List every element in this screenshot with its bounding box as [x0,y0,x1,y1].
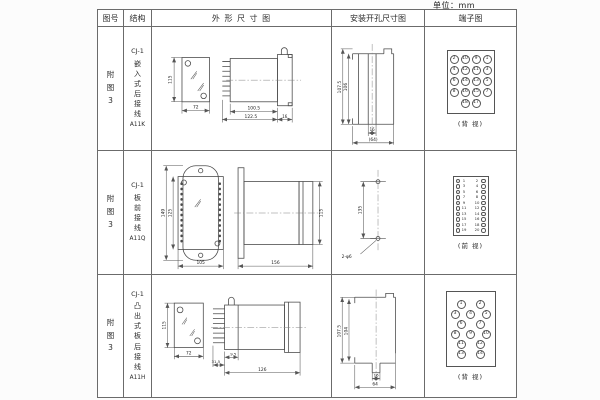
mounting-drawing-a11h: 107.5 104 16 64 [333,276,424,396]
terminal-number: 3 [461,184,467,188]
outline-cell-row2: 149 125 105 156 115 [152,151,332,275]
dim-slot-w: 16 [369,127,374,132]
terminal: 12 [476,340,485,349]
terminal: 15 [472,88,481,97]
terminal: 4 [450,66,459,75]
dim-depth1: 100.5 [247,105,260,111]
mirror-mark [194,199,200,207]
terminal: 1 [483,55,492,64]
outline-cell-row1: 115 72 100.5 122.5 16 [152,27,332,151]
dim-cutout-h1: 107.5 [336,325,342,338]
terminal-circle [456,190,461,195]
terminal-view-label: (前 视) [458,240,483,250]
mounting-drawing-a11q: 135 2-φ6 [333,152,424,274]
terminal: 8 [451,330,460,339]
terminal: 16 [461,88,470,97]
structure-cell-row3: CJ-1 凸 出 式 板 后 接 线 A11H [124,275,152,397]
dim-slot-w: 16 [373,373,378,378]
dim-cutout-h2: 104 [343,327,349,336]
terminal-circle [481,201,486,206]
mirror-mark [197,83,203,91]
terminal-number: 15 [461,217,467,221]
terminal-number: 11 [461,206,467,210]
terminal-circle [456,217,461,222]
terminal-circle [481,179,486,184]
dim-cutout-w: 64 [372,381,378,387]
terminal: 2 [450,55,459,64]
terminal-number: 18 [474,223,480,227]
terminal-number: 17 [461,223,467,227]
dim-side-h: 115 [318,208,324,217]
terminal-view-label: (背 视) [458,371,483,381]
figure-cell-row3: 附 图 3 [98,275,124,397]
terminal-number: 19 [461,228,467,232]
dim-case-h: 125 [167,208,173,217]
terminal: 17 [472,99,481,108]
terminal-circle [481,217,486,222]
terminal-circle [456,179,461,184]
terminal-number: 16 [474,217,480,221]
terminal-circle [481,228,486,233]
dim-front-width: 72 [186,350,192,356]
structure-cell-row1: CJ-1 嵌 入 式 后 接 线 A11K [124,27,152,151]
terminal-number: 8 [474,195,480,199]
dimension-table: 图号 结构 外 形 尺 寸 图 安装开孔尺寸图 端子图 附 图 3 CJ-1 嵌… [97,9,517,398]
dim-body-depth: 126 [258,367,267,373]
terminal: 3 [483,66,492,75]
terminal-circle [456,223,461,228]
terminal-number: 13 [461,212,467,216]
terminal-circle [456,228,461,233]
terminal-number: 4 [474,184,480,188]
terminal-circle [456,212,461,217]
terminal: 1 [457,300,466,309]
terminal-block-back-view: 21091 412113 614135 816157 1817 [447,50,495,114]
header-cell-mounting: 安装开孔尺寸图 [332,10,425,27]
structure-code-label: A11K [130,121,145,129]
terminal-pins [222,61,230,95]
terminal-circle [456,201,461,206]
terminal: 6 [457,320,466,329]
terminal-number: 9 [461,201,467,205]
terminal-circle [481,223,486,228]
terminal-circle [456,206,461,211]
mounting-cell-row1: 107.5 106 16 (64) [332,27,425,151]
terminal-view-label: (背 视) [458,118,483,128]
structure-type-label: 嵌 入 式 后 接 线 [134,59,141,120]
terminal-circle [481,184,486,189]
dim-front-height: 115 [161,321,167,330]
terminal-number: 7 [461,195,467,199]
dim-cutout-w: (64) [368,136,377,142]
outline-drawing-a11k: 115 72 100.5 122.5 16 [153,28,331,150]
structure-code-label: A11H [130,374,146,382]
dim-depth: 156 [271,260,280,266]
mounting-cell-row2: 135 2-φ6 [332,151,425,275]
terminal-cell-row2: 12 34 56 78 910 1112 1314 1516 1718 1920… [425,151,516,275]
terminal-number: 10 [474,201,480,205]
dim-front-height: 115 [167,75,173,84]
hole-spec-label: 2-φ6 [341,254,351,260]
terminal: 9 [466,330,475,339]
mirror-mark [190,71,196,79]
terminal-circle [481,212,486,217]
structure-cell-row2: CJ-1 板 前 接 线 A11Q [124,151,152,275]
terminal: 11 [472,66,481,75]
terminal: 10 [461,55,470,64]
structure-type-label: 板 前 接 线 [134,193,141,234]
terminal-circle [481,190,486,195]
mounting-cell-row3: 107.5 104 16 64 [332,275,425,397]
header-cell-figure: 图号 [98,10,124,27]
terminal-circle [456,195,461,200]
terminal: 13 [472,77,481,86]
dim-pins-depth: 31.5 [211,359,220,364]
dim-flange: 16 [282,114,287,119]
outline-drawing-a11h: 115 72 31.5 9.5 126 [153,276,331,396]
dim-plate-depth: 9.5 [230,351,237,356]
hook [281,47,287,54]
model-label: CJ-1 [131,181,144,190]
terminal-circle [481,206,486,211]
terminal: 10 [482,330,491,339]
dim-plate-h: 149 [160,208,166,217]
mirror-mark [182,318,187,325]
terminal-number: 20 [474,228,480,232]
header-cell-structure: 结构 [124,10,152,27]
terminal: 5 [482,310,491,319]
dim-cutout-h1: 107.5 [336,80,342,93]
figure-cell-row2: 附 图 3 [98,151,124,275]
structure-type-label: 凸 出 式 板 后 接 线 [134,301,141,372]
model-label: CJ-1 [131,47,144,56]
mirror-mark [189,329,194,336]
terminal: 18 [461,99,470,108]
terminal-block-front-view: 12 34 56 78 910 1112 1314 1516 1718 1920 [453,176,489,236]
terminal-circle [481,195,486,200]
dim-front-width: 72 [192,104,198,110]
terminal: 14 [476,350,485,359]
dim-cutout-h2: 106 [343,82,349,91]
terminal-cell-row3: 12 345 67 8910 1112 1314 (背 视) [425,275,516,397]
dim-front-w: 105 [196,260,205,266]
terminal-block-back-view: 12 345 67 8910 1112 1314 [446,291,496,367]
mounting-drawing-a11k: 107.5 106 16 (64) [333,28,424,150]
figure-cell-row1: 附 图 3 [98,27,124,151]
terminal-number: 2 [474,179,480,183]
terminal-number: 6 [474,190,480,194]
terminal: 3 [451,310,460,319]
terminal-number: 14 [474,212,480,216]
terminal: 12 [461,66,470,75]
header-cell-terminal: 端子图 [425,10,516,27]
terminal-number: 12 [474,206,480,210]
dim-depth-total: 122.5 [244,114,257,120]
terminal: 5 [483,77,492,86]
terminal: 7 [476,320,485,329]
header-cell-outline: 外 形 尺 寸 图 [152,10,332,27]
terminal: 14 [461,77,470,86]
outline-cell-row3: 115 72 31.5 9.5 126 [152,275,332,397]
terminal: 13 [457,350,466,359]
terminal: 4 [466,310,475,319]
terminal-number: 5 [461,190,467,194]
structure-code-label: A11Q [130,235,146,243]
terminal: 11 [457,340,466,349]
terminal-cell-row1: 21091 412113 614135 816157 1817 (背 视) [425,27,516,151]
terminal: 9 [472,55,481,64]
terminal: 2 [476,300,485,309]
terminal: 6 [450,77,459,86]
terminal-circle [456,184,461,189]
outline-drawing-a11q: 149 125 105 156 115 [153,152,331,274]
model-label: CJ-1 [131,290,144,299]
dim-hole-spacing: 135 [357,205,363,214]
terminal-pins [212,309,224,343]
hook [228,297,234,305]
terminal-number: 1 [461,179,467,183]
terminal: 7 [483,88,492,97]
terminal: 8 [450,88,459,97]
